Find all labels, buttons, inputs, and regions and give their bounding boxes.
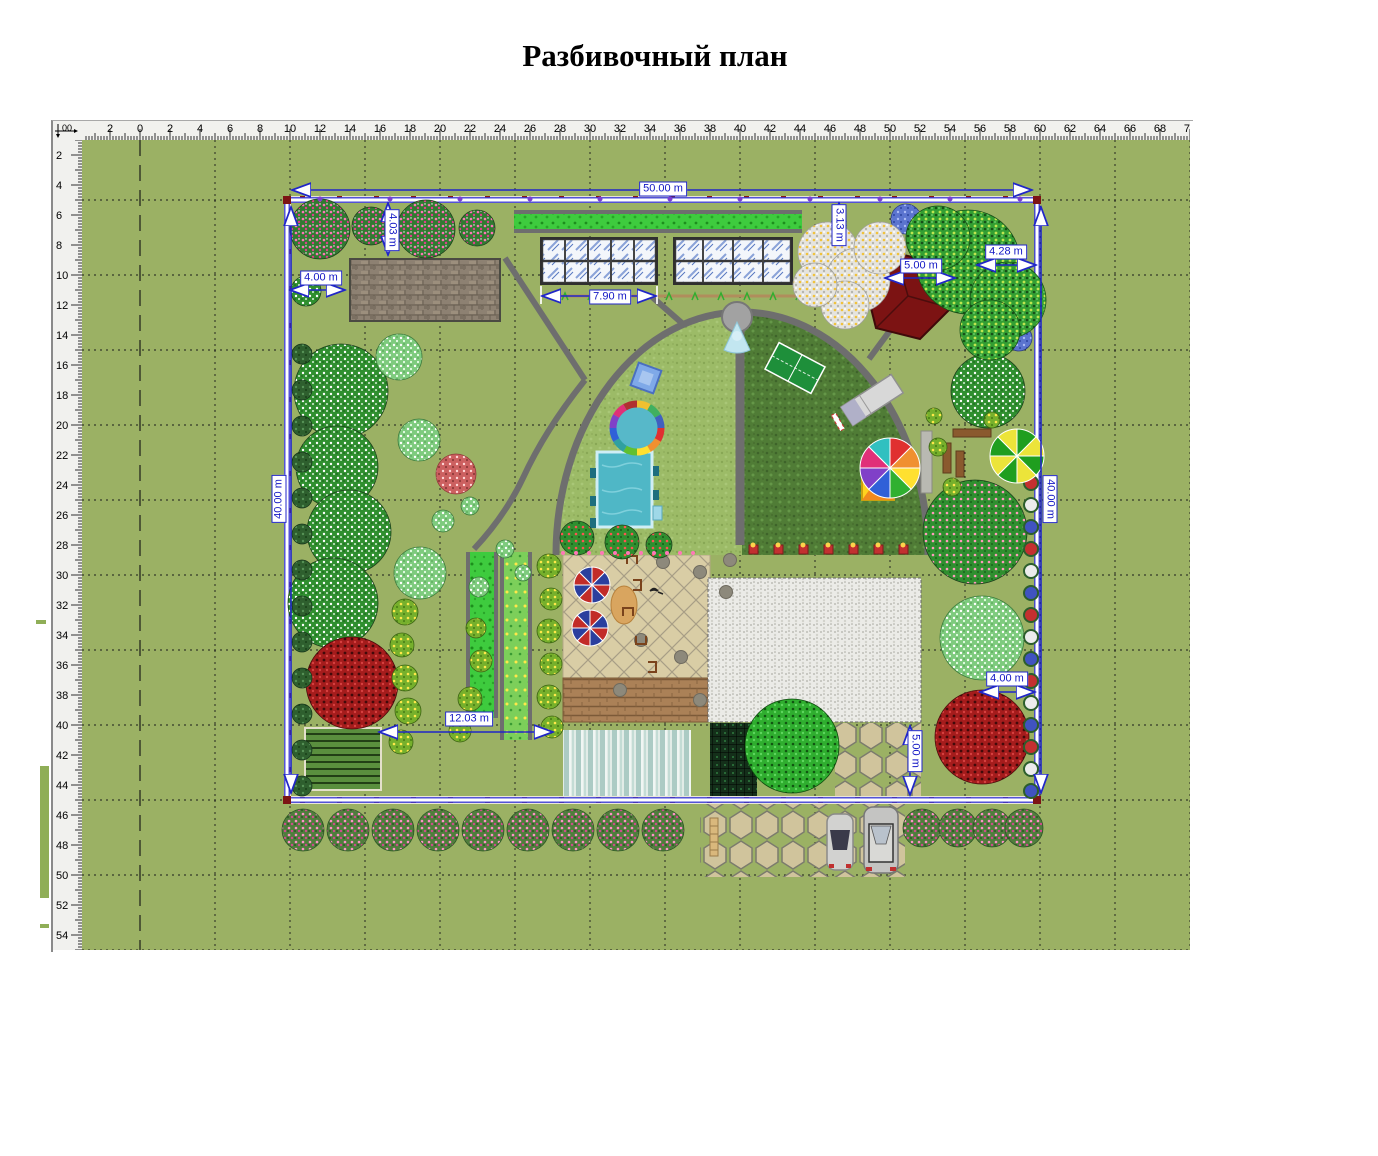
palette-artifact xyxy=(40,924,49,928)
flowering-shrub[interactable] xyxy=(903,809,941,847)
ruler-origin-label: 00 xyxy=(62,123,72,133)
flower[interactable] xyxy=(1024,762,1038,776)
tree[interactable] xyxy=(515,565,531,581)
tree[interactable] xyxy=(390,633,414,657)
h-ruler-label: 22 xyxy=(464,123,476,135)
flower[interactable] xyxy=(1024,718,1038,732)
tree[interactable] xyxy=(926,408,942,424)
h-ruler-label: 70 xyxy=(1184,123,1190,135)
v-ruler-label: 18 xyxy=(56,390,68,402)
tree[interactable] xyxy=(469,577,489,597)
h-ruler-label: 68 xyxy=(1154,123,1166,135)
flowering-shrub[interactable] xyxy=(462,809,504,851)
v-ruler-label: 46 xyxy=(56,810,68,822)
shrub[interactable] xyxy=(292,740,312,760)
dim-greenhouse-width[interactable]: 7.90 m xyxy=(589,290,631,305)
tree[interactable] xyxy=(394,547,446,599)
dim-plot-height-left[interactable]: 40.00 m xyxy=(272,475,287,523)
shrub[interactable] xyxy=(292,704,312,724)
h-ruler-label: 38 xyxy=(704,123,716,135)
tree[interactable] xyxy=(560,521,594,555)
h-ruler-label: 44 xyxy=(794,123,806,135)
tree[interactable] xyxy=(540,653,562,675)
v-ruler-label: 6 xyxy=(56,210,62,222)
h-ruler-label: 34 xyxy=(644,123,656,135)
tree[interactable] xyxy=(392,599,418,625)
shrub[interactable] xyxy=(292,524,312,544)
tree[interactable] xyxy=(466,618,486,638)
flowering-shrub[interactable] xyxy=(507,809,549,851)
h-ruler-label: 50 xyxy=(884,123,896,135)
h-ruler-label: 14 xyxy=(344,123,356,135)
dim-gazebo-width[interactable]: 5.00 m xyxy=(900,259,942,274)
h-ruler-label: 12 xyxy=(314,123,326,135)
h-ruler-label: 26 xyxy=(524,123,536,135)
page: { "title": "Разбивочный план", "ruler": … xyxy=(0,0,1378,1156)
tree[interactable] xyxy=(605,525,639,559)
tree[interactable] xyxy=(793,263,837,307)
tree[interactable] xyxy=(935,690,1029,784)
dim-gazebo-offset[interactable]: 3.13 m xyxy=(832,204,847,246)
tree[interactable] xyxy=(458,687,482,711)
h-ruler-label: 48 xyxy=(854,123,866,135)
shrub[interactable] xyxy=(292,452,312,472)
tree[interactable] xyxy=(496,540,514,558)
shrub[interactable] xyxy=(292,344,312,364)
tree[interactable] xyxy=(436,454,476,494)
v-ruler-label: 50 xyxy=(56,870,68,882)
tree[interactable] xyxy=(470,650,492,672)
v-ruler-label: 10 xyxy=(56,270,68,282)
v-ruler-label: 22 xyxy=(56,450,68,462)
dim-shed-offset-vertical[interactable]: 4.03 m xyxy=(385,209,400,251)
flowering-shrub[interactable] xyxy=(939,809,977,847)
flower[interactable] xyxy=(1024,564,1038,578)
h-ruler-label: 62 xyxy=(1064,123,1076,135)
flower[interactable] xyxy=(1024,520,1038,534)
round-pool[interactable] xyxy=(612,403,662,453)
flowering-shrub[interactable] xyxy=(417,809,459,851)
tree[interactable] xyxy=(943,478,961,496)
flowering-shrub[interactable] xyxy=(327,809,369,851)
shrub[interactable] xyxy=(292,560,312,580)
shrub[interactable] xyxy=(292,488,312,508)
h-ruler-label: 54 xyxy=(944,123,956,135)
flowering-shrub[interactable] xyxy=(372,809,414,851)
shrub[interactable] xyxy=(292,632,312,652)
h-ruler-label: 30 xyxy=(584,123,596,135)
v-ruler-label: 36 xyxy=(56,660,68,672)
garden-bed[interactable] xyxy=(305,728,381,790)
tree[interactable] xyxy=(392,665,418,691)
v-ruler-label: 4 xyxy=(56,180,62,192)
water-garden-plot[interactable] xyxy=(563,730,691,796)
h-ruler-label: 2 xyxy=(107,123,113,135)
tree[interactable] xyxy=(376,334,422,380)
flowering-shrub[interactable] xyxy=(552,809,594,851)
flower[interactable] xyxy=(1024,696,1038,710)
h-ruler-label: 56 xyxy=(974,123,986,135)
fountain[interactable] xyxy=(722,302,752,353)
tree[interactable] xyxy=(923,480,1027,584)
tree[interactable] xyxy=(389,730,413,754)
dim-plot-height-right[interactable]: 40.00 m xyxy=(1043,475,1058,523)
tree[interactable] xyxy=(537,619,561,643)
v-ruler-label: 2 xyxy=(56,150,62,162)
h-ruler-label: 36 xyxy=(674,123,686,135)
h-ruler-label: 0 xyxy=(137,123,143,135)
car[interactable] xyxy=(864,807,898,873)
v-ruler-label: 32 xyxy=(56,600,68,612)
tree[interactable] xyxy=(940,596,1024,680)
h-ruler-label: 42 xyxy=(764,123,776,135)
flowering-shrub[interactable] xyxy=(282,809,324,851)
tree[interactable] xyxy=(854,222,906,274)
tree[interactable] xyxy=(537,685,561,709)
palette-artifact xyxy=(36,620,46,624)
h-ruler-label: 24 xyxy=(494,123,506,135)
h-ruler-label: 46 xyxy=(824,123,836,135)
playground-umbrella[interactable] xyxy=(860,438,920,498)
patio-umbrella[interactable] xyxy=(572,610,608,646)
h-ruler-label: 20 xyxy=(434,123,446,135)
tree[interactable] xyxy=(984,412,1000,428)
v-ruler-label: 38 xyxy=(56,690,68,702)
flower[interactable] xyxy=(1024,498,1038,512)
tree[interactable] xyxy=(745,699,839,793)
flower[interactable] xyxy=(1024,542,1038,556)
garden-wall[interactable] xyxy=(921,431,932,493)
h-ruler-label: 4 xyxy=(197,123,203,135)
h-ruler-label: 8 xyxy=(257,123,263,135)
ruler-origin-button[interactable]: 00 xyxy=(53,121,83,141)
tree[interactable] xyxy=(960,300,1020,360)
dim-shed-offset-horizontal[interactable]: 4.00 m xyxy=(300,271,342,286)
flowering-shrub[interactable] xyxy=(597,809,639,851)
patio-umbrella[interactable] xyxy=(574,567,610,603)
v-ruler-label: 28 xyxy=(56,540,68,552)
shed[interactable] xyxy=(350,259,500,321)
flowering-shrub[interactable] xyxy=(642,809,684,851)
flower[interactable] xyxy=(1024,586,1038,600)
h-ruler-label: 16 xyxy=(374,123,386,135)
plan-canvas[interactable] xyxy=(82,140,1190,950)
dim-garden-width[interactable]: 12.03 m xyxy=(445,712,493,727)
hedge[interactable] xyxy=(514,210,802,233)
palette-artifact xyxy=(40,766,49,898)
tree[interactable] xyxy=(395,698,421,724)
v-ruler-label: 42 xyxy=(56,750,68,762)
flower[interactable] xyxy=(1024,740,1038,754)
tree[interactable] xyxy=(290,199,350,259)
h-ruler-label: 32 xyxy=(614,123,626,135)
tree[interactable] xyxy=(541,716,563,738)
greenhouse[interactable] xyxy=(540,237,658,285)
h-ruler-label: 66 xyxy=(1124,123,1136,135)
dim-driveway-depth[interactable]: 5.00 m xyxy=(908,730,923,772)
horizontal-ruler: 2024681012141618202224262830323436384042… xyxy=(82,121,1190,141)
v-ruler-label: 52 xyxy=(56,900,68,912)
shrub[interactable] xyxy=(292,596,312,616)
greenhouse[interactable] xyxy=(673,237,793,285)
v-ruler-label: 30 xyxy=(56,570,68,582)
swimming-pool[interactable] xyxy=(590,452,662,528)
h-ruler-label: 52 xyxy=(914,123,926,135)
dim-tree-offset-right[interactable]: 4.00 m xyxy=(986,672,1028,687)
vertical-ruler: 2468101214161820222426283032343638404244… xyxy=(53,140,84,950)
shrub[interactable] xyxy=(292,776,312,796)
shrub[interactable] xyxy=(292,668,312,688)
ladder xyxy=(710,818,718,856)
flower[interactable] xyxy=(1024,608,1038,622)
v-ruler-label: 26 xyxy=(56,510,68,522)
v-ruler-label: 48 xyxy=(56,840,68,852)
flowering-shrub[interactable] xyxy=(1005,809,1043,847)
dim-plot-width[interactable]: 50.00 m xyxy=(639,182,687,197)
shrub[interactable] xyxy=(292,416,312,436)
v-ruler-label: 20 xyxy=(56,420,68,432)
v-ruler-label: 12 xyxy=(56,300,68,312)
patio-rug xyxy=(611,586,637,624)
h-ruler-label: 2 xyxy=(167,123,173,135)
v-ruler-label: 54 xyxy=(56,930,68,942)
flower[interactable] xyxy=(1024,630,1038,644)
h-ruler-label: 58 xyxy=(1004,123,1016,135)
tree[interactable] xyxy=(397,200,455,258)
v-ruler-label: 8 xyxy=(56,240,62,252)
h-ruler-label: 6 xyxy=(227,123,233,135)
h-ruler-label: 40 xyxy=(734,123,746,135)
h-ruler-label: 18 xyxy=(404,123,416,135)
h-ruler-label: 60 xyxy=(1034,123,1046,135)
dim-tree-offset[interactable]: 4.28 m xyxy=(985,245,1027,260)
tree[interactable] xyxy=(459,210,495,246)
h-ruler-label: 64 xyxy=(1094,123,1106,135)
tree[interactable] xyxy=(929,438,947,456)
shrub[interactable] xyxy=(292,380,312,400)
h-ruler-label: 10 xyxy=(284,123,296,135)
house[interactable] xyxy=(708,578,921,722)
v-ruler-label: 44 xyxy=(56,780,68,792)
page-title: Разбивочный план xyxy=(0,38,1310,74)
v-ruler-label: 24 xyxy=(56,480,68,492)
flower[interactable] xyxy=(1024,784,1038,798)
tree[interactable] xyxy=(461,497,479,515)
tree[interactable] xyxy=(537,554,561,578)
pavilion-umbrella[interactable] xyxy=(990,429,1044,483)
tree[interactable] xyxy=(432,510,454,532)
tree[interactable] xyxy=(306,637,398,729)
flower[interactable] xyxy=(1024,652,1038,666)
tree[interactable] xyxy=(540,588,562,610)
v-ruler-label: 14 xyxy=(56,330,68,342)
h-ruler-label: 28 xyxy=(554,123,566,135)
v-ruler-label: 16 xyxy=(56,360,68,372)
tree[interactable] xyxy=(398,419,440,461)
car[interactable] xyxy=(827,814,853,870)
v-ruler-label: 40 xyxy=(56,720,68,732)
v-ruler-label: 34 xyxy=(56,630,68,642)
